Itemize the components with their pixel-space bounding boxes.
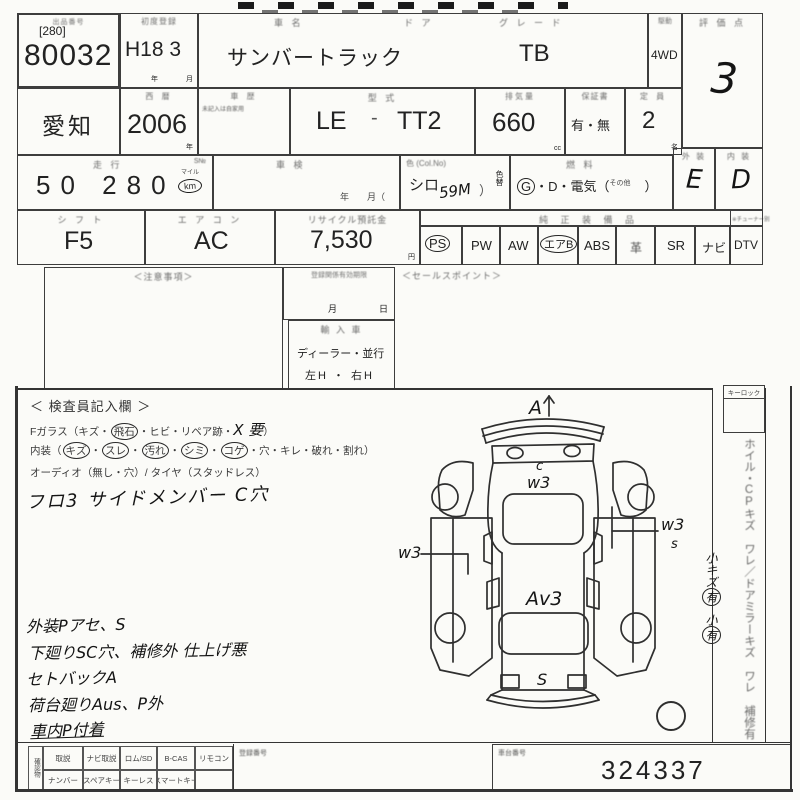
remark-line: 荷台廻りAus、P外 [28, 690, 163, 716]
displacement-unit: cc [554, 145, 561, 152]
cab-left-side [488, 463, 502, 553]
shaken-units: 年 月（ [340, 190, 385, 203]
chassis-number-label: 車台番号 [498, 748, 526, 758]
fuel-close-paren: ） [645, 179, 658, 194]
tuner-note-cell: ※チューナー別 [730, 210, 763, 226]
outer-border-right [790, 386, 792, 792]
small-damage-2-yes-circled: 有 [702, 626, 721, 644]
handdrawn-circle-mark [657, 702, 685, 730]
dot-separator: ・ [209, 445, 220, 457]
headlight-right [564, 446, 580, 457]
equipment-header-bar: 純 正 装 備 品 [420, 210, 763, 226]
equipment-item-navi: ナビ [695, 226, 730, 265]
lot-number-cell: 出品番号 [280] 80032 [17, 13, 120, 88]
expiry-month-label: 月 [328, 302, 337, 315]
interior-prefix: 内装（ [30, 445, 62, 457]
grade-value: TB [519, 40, 550, 68]
recycle-deposit-unit: 円 [408, 252, 415, 262]
lot-label: 出品番号 [19, 17, 118, 27]
check-blank-cell [195, 770, 233, 791]
car-name-label: 車 名 [274, 16, 304, 29]
diagram-left-w3-mark: w3 [398, 543, 421, 562]
score-value: 3 [709, 53, 739, 104]
sidebar-small-damage-note: 小キズ有小有 [702, 552, 721, 722]
drive-cell: 駆動 4WD [648, 13, 682, 88]
interior-condition-line: 内装（キズ・スレ・汚れ・シミ・コゲ・穴・キレ・破れ・割れ） [30, 442, 375, 459]
sales-point-label: ＜セールスポイント＞ [402, 269, 502, 282]
interior-sure-circled: スレ [102, 442, 129, 459]
history-cell: 車 歴 未記入は自家用 [198, 88, 290, 155]
left-tail-light [501, 675, 519, 688]
color-code-handwritten: 59M [438, 180, 472, 202]
score-cell: 評 価 点 3 [682, 13, 763, 148]
displacement-label: 排気量 [476, 91, 564, 102]
front-bumper [482, 419, 604, 429]
model-code-left: LE [316, 107, 347, 136]
import-type-options: ディーラー・並行 [297, 345, 384, 361]
drive-value: 4WD [651, 48, 678, 62]
left-annotation-leader [421, 554, 468, 574]
mileage-unit-km-circled: km [178, 178, 203, 194]
small-damage-2: 小 [704, 614, 718, 626]
recycle-deposit-value: 7,530 [310, 226, 373, 255]
glass-condition-line: Fガラス（キズ・飛石・ヒビ・リペア跡・X 要） [30, 419, 274, 440]
mileage-unit-group: マイル km [170, 167, 210, 194]
equipment-label: 純 正 装 備 品 [539, 213, 639, 226]
warranty-label: 保証書 [566, 91, 624, 102]
cab-right-side [584, 461, 598, 553]
check-manual: 取説 [43, 746, 83, 770]
import-handle-options: 左H ・ 右H [305, 367, 374, 383]
fuel-label: 燃 料 [566, 158, 596, 171]
score-label: 評 価 点 [683, 16, 762, 29]
exterior-grade-cell: 外 装 E [673, 148, 715, 210]
headlight-left [507, 448, 523, 459]
check-rom-sd: ロム/SD [120, 746, 157, 770]
right-mirror [628, 484, 654, 510]
tuner-note: ※チューナー別 [732, 215, 770, 223]
equipment-ps-circled: PS [425, 235, 450, 252]
equipment-airbag-circled: エアB [540, 235, 577, 253]
auction-sheet: 出品番号 [280] 80032 初度登録 H18 3 年 月 車 名 ド ア … [0, 0, 800, 800]
check-spare-key: スペアキー [83, 770, 120, 791]
check-remote: リモコン [195, 746, 233, 770]
shaken-cell: 車 検 年 月（ [213, 155, 400, 210]
capacity-label: 定 員 [626, 91, 681, 102]
equipment-item-leather: 革 [616, 226, 655, 265]
rear-bumper [491, 695, 595, 702]
equipment-dtv: DTV [734, 238, 758, 252]
mileage-value: 50 280 [36, 170, 176, 201]
glass-handwritten-mark: X 要 [233, 421, 263, 439]
color-paren: ） [479, 180, 492, 199]
check-bcas: B-CAS [157, 746, 195, 770]
equipment-abs: ABS [584, 238, 610, 253]
interior-shimi-circled: シミ [181, 442, 208, 459]
lot-number: 80032 [24, 39, 112, 73]
expiry-day-label: 日 [379, 302, 388, 315]
color-cell: 色 (Col.No) シロ 59M ） 色替 [400, 155, 510, 210]
import-car-label: 輸 入 車 [289, 323, 394, 336]
registration-expiry-box: 登録関係有効期限 月 日 [283, 267, 395, 320]
glass-suffix: ） [263, 426, 274, 438]
dot-separator: ・ [91, 445, 102, 457]
vehicle-damage-diagram: A c w3 w3 w3 s Av3 S [395, 390, 715, 745]
clipped-title-strokes [238, 2, 568, 9]
shaken-label: 車 検 [276, 158, 306, 171]
car-name-value: サンバートラック [227, 42, 403, 72]
equipment-item-sr: SR [655, 226, 695, 265]
side-member-note-handwritten: フロ3 サイドメンバー C穴 [26, 480, 270, 514]
first-registration-label: 初度登録 [121, 16, 197, 27]
model-year-value: 2006 [127, 109, 187, 140]
fuel-options: G・D・電気（その他） [517, 176, 658, 195]
interior-koge-circled: コゲ [221, 442, 248, 459]
dot-separator: ・ [170, 445, 181, 457]
capacity-cell: 定 員 2 名 [625, 88, 682, 155]
prefecture-value: 愛知 [42, 107, 94, 141]
inspector-section-title: ＜ 検査員記入欄 ＞ [30, 396, 151, 415]
prefecture-cell: 愛知 [17, 88, 120, 155]
left-mirror [432, 484, 458, 510]
fuel-other-label: その他 [610, 180, 631, 187]
shift-label: シ フ ト [18, 213, 144, 226]
warranty-value: 有・無 [571, 115, 610, 134]
shift-cell: シ フ ト F5 [17, 210, 145, 265]
keylock-box: キーロック [723, 385, 765, 433]
remark-line: 下廻りSC穴、補修外 仕上げ悪 [28, 636, 247, 664]
equipment-navi: ナビ [702, 239, 726, 256]
interior-rest: ・穴・キレ・破れ・割れ） [249, 445, 375, 457]
diagram-right-w3-mark: w3 [661, 515, 684, 534]
check-keyless: キーレス [120, 770, 157, 791]
right-rear-wheel [621, 613, 651, 643]
chassis-number-value: 324337 [601, 755, 706, 786]
lot-bracket: [280] [39, 24, 66, 38]
import-car-box: 輸 入 車 ディーラー・並行 左H ・ 右H [288, 320, 395, 390]
recycle-deposit-label: リサイクル預託金 [276, 213, 419, 226]
mileage-cell: 走 行 S№ 50 280 マイル km [17, 155, 213, 210]
diagram-cab-w3-mark: w3 [527, 473, 550, 492]
diagram-cab-c-mark: c [536, 459, 543, 474]
interior-grade-value: D [730, 165, 751, 196]
fuel-rest: ・D・電気（ [535, 179, 609, 194]
sidebar-right-border [765, 388, 766, 742]
remark-line: セトバックA [26, 664, 118, 690]
outer-border-left [15, 386, 18, 791]
aircon-value: AC [194, 227, 229, 256]
month-unit: 月 [186, 74, 193, 84]
color-value: シロ [409, 174, 439, 195]
remark-line: 車内P付着 [30, 716, 104, 743]
drive-label: 駆動 [649, 16, 681, 26]
first-registration-value: H18 3 [125, 38, 181, 62]
registration-number-label: 登録番号 [239, 748, 267, 758]
fuel-cell: 燃 料 G・D・電気（その他） [510, 155, 673, 210]
shift-value: F5 [64, 227, 93, 256]
check-navi-manual: ナビ取説 [83, 746, 120, 770]
model-year-unit: 年 [186, 142, 193, 152]
equipment-item-ps: PS [420, 226, 462, 265]
color-change-label: 色替 [494, 170, 505, 186]
equipment-item-airbag: エアB [538, 226, 578, 265]
interior-grade-cell: 内 装 D [715, 148, 763, 210]
audio-tire-line: オーディオ（無し・穴）/ タイヤ（スタッドレス） [30, 465, 266, 480]
exterior-grade-value: E [685, 165, 703, 196]
mileage-unit-mile: マイル [170, 167, 210, 176]
aircon-label: エ ア コ ン [146, 213, 274, 226]
interior-grade-label: 内 装 [716, 151, 762, 162]
diagram-right-s-mark: s [671, 537, 678, 552]
diagram-bed-mark: Av3 [524, 588, 562, 610]
model-code-label: 型 式 [291, 91, 474, 104]
check-smart-key: スマートキー [157, 770, 195, 791]
aircon-cell: エ ア コ ン AC [145, 210, 275, 265]
equipment-sr: SR [667, 238, 685, 253]
remark-line: 外装Pアセ、S [26, 611, 126, 638]
model-year-cell: 西 暦 2006 年 [120, 88, 198, 155]
equipment-leather: 革 [630, 239, 642, 256]
history-note: 未記入は自家用 [202, 104, 244, 113]
equipment-item-pw: PW [462, 226, 500, 265]
sidebar-wheel-mirror-note: ホイル・CPキズ ワレ／ドアミラーキズ ワレ 補修有 [741, 438, 757, 740]
diagram-front-mark: A [527, 397, 542, 419]
car-name-cell: 車 名 ド ア グ レ ー ド サンバートラック TB [198, 13, 648, 88]
windshield [503, 494, 583, 544]
recycle-deposit-cell: リサイクル預託金 7,530 円 [275, 210, 420, 265]
history-label: 車 歴 [199, 91, 289, 102]
door-label: ド ア [404, 16, 434, 29]
exterior-grade-label: 外 装 [674, 151, 714, 162]
equipment-item-aw: AW [500, 226, 538, 265]
equipment-item-dtv: DTV [730, 226, 763, 265]
small-damage-1-yes-circled: 有 [702, 588, 721, 606]
bottom-strip-divider [233, 744, 234, 790]
caution-notes-label: ＜注意事項＞ [45, 270, 282, 283]
left-rear-wheel [435, 613, 465, 643]
interior-yogore-circled: 汚れ [142, 442, 169, 459]
warranty-cell: 保証書 有・無 [565, 88, 625, 155]
model-code-right: TT2 [397, 107, 441, 136]
small-damage-1: 小キズ [704, 552, 718, 588]
capacity-value: 2 [642, 107, 655, 135]
right-side-panel [594, 518, 655, 676]
dot-separator: ・ [130, 445, 141, 457]
equipment-pw: PW [471, 238, 492, 253]
glass-mid: ・ヒビ・リペア跡・ [139, 426, 234, 438]
outer-border-bottom [15, 789, 793, 792]
color-label: 色 (Col.No) [406, 158, 446, 169]
fuel-gasoline-circled: G [517, 178, 535, 195]
displacement-value: 660 [492, 107, 535, 138]
caution-notes-box: ＜注意事項＞ [44, 267, 283, 390]
bed-front-panel [499, 613, 588, 654]
mileage-sno: S№ [194, 158, 206, 165]
equipment-item-abs: ABS [578, 226, 616, 265]
left-side-panel [431, 518, 492, 676]
chassis-number-box: 車台番号 324337 [492, 744, 791, 790]
confirmation-items-label: 確認物 [28, 746, 43, 790]
model-code-cell: 型 式 LE - TT2 [290, 88, 475, 155]
glass-prefix: Fガラス（キズ・ [30, 426, 110, 438]
keylock-label: キーロック [724, 386, 764, 399]
glass-stonechip-circled: 飛石 [111, 423, 138, 440]
displacement-cell: 排気量 660 cc [475, 88, 565, 155]
model-code-dash: - [371, 107, 378, 130]
diagram-rear-mark: S [537, 670, 547, 689]
registration-expiry-label: 登録関係有効期限 [284, 270, 394, 280]
check-number-plate: ナンバー [43, 770, 83, 791]
equipment-aw: AW [508, 238, 528, 253]
first-registration-cell: 初度登録 H18 3 年 月 [120, 13, 198, 88]
model-year-label: 西 暦 [121, 91, 197, 102]
interior-kizu-circled: キズ [63, 442, 90, 459]
year-unit: 年 [151, 74, 158, 84]
grade-label: グ レ ー ド [499, 16, 564, 29]
